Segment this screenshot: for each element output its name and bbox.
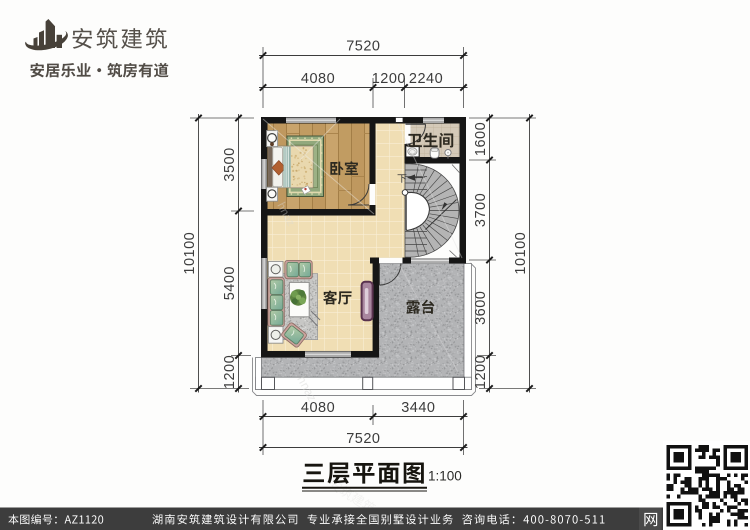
svg-text:3600: 3600 xyxy=(473,291,489,325)
svg-text:3700: 3700 xyxy=(473,193,489,227)
svg-text:1600: 1600 xyxy=(473,122,489,156)
svg-text:5400: 5400 xyxy=(222,266,238,300)
svg-text:10100: 10100 xyxy=(182,232,198,275)
svg-text:2240: 2240 xyxy=(409,71,443,87)
svg-text:4080: 4080 xyxy=(301,71,335,87)
svg-text:1200: 1200 xyxy=(372,71,406,87)
svg-text:7520: 7520 xyxy=(346,431,380,447)
svg-text:1200: 1200 xyxy=(473,355,489,389)
svg-text:10100: 10100 xyxy=(513,232,529,275)
svg-text:7520: 7520 xyxy=(346,39,380,55)
svg-text:3500: 3500 xyxy=(222,147,238,181)
svg-text:3440: 3440 xyxy=(401,400,435,416)
svg-text:1200: 1200 xyxy=(222,355,238,389)
svg-text:4080: 4080 xyxy=(301,400,335,416)
svg-text:1:100: 1:100 xyxy=(428,469,462,484)
